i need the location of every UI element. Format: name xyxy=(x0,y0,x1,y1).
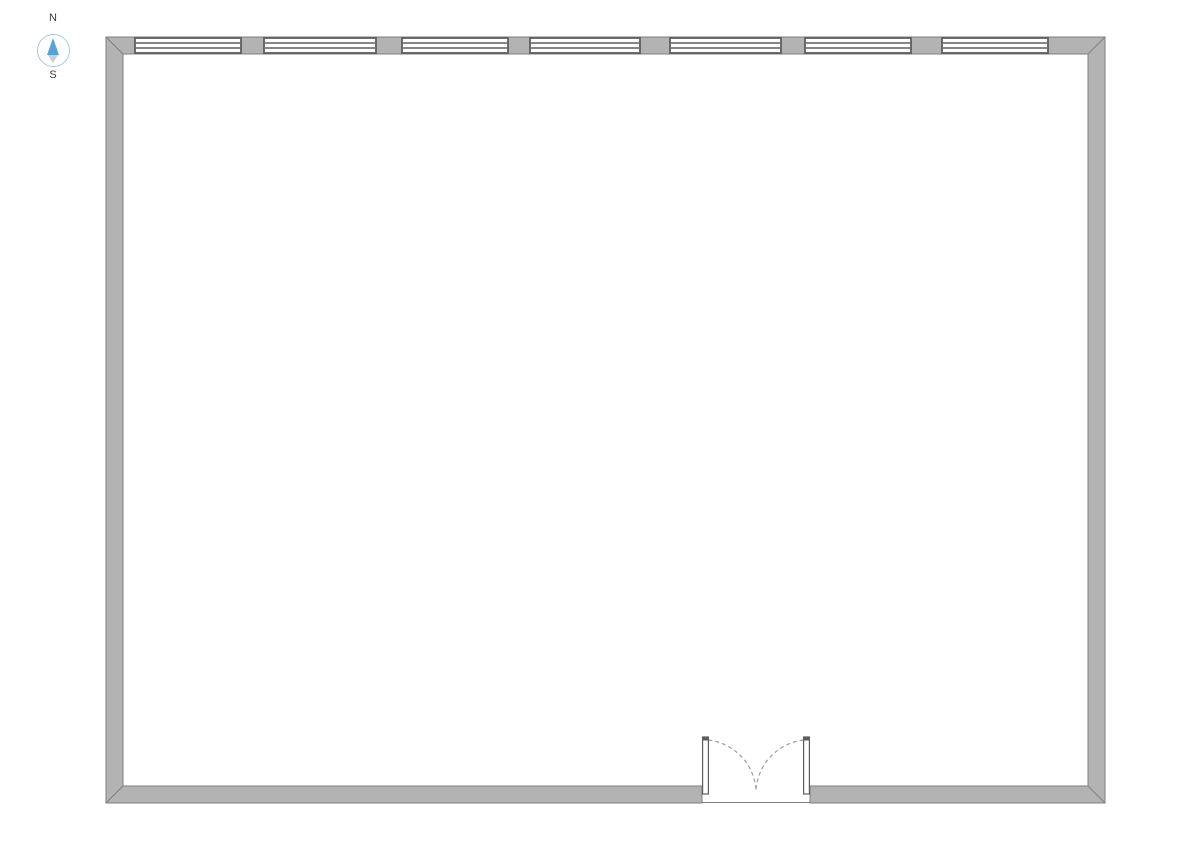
window-4 xyxy=(530,38,640,53)
window-2 xyxy=(264,38,376,53)
walls-group xyxy=(106,37,1105,803)
compass-north-label: N xyxy=(49,12,57,24)
compass-south-label: S xyxy=(49,69,56,81)
floorplan-svg xyxy=(0,0,1191,842)
compass-rose: N S xyxy=(36,12,70,81)
window-7 xyxy=(942,38,1048,53)
window-5 xyxy=(670,38,781,53)
window-6 xyxy=(805,38,911,53)
window-3 xyxy=(402,38,508,53)
compass-north-needle-icon xyxy=(47,38,59,55)
door-leaf-left-cap xyxy=(703,737,709,741)
window-1 xyxy=(135,38,241,53)
door-leaf-right-cap xyxy=(804,737,810,741)
door-group xyxy=(703,737,810,794)
door-leaf-left xyxy=(703,737,709,794)
door-swing-arc-left xyxy=(708,740,756,790)
compass-ring xyxy=(37,34,70,67)
door-leaf-right xyxy=(804,737,810,794)
windows-group xyxy=(135,38,1048,53)
floorplan-page: N S xyxy=(0,0,1191,842)
door-swing-arc-right xyxy=(756,740,804,790)
compass-south-needle-icon xyxy=(48,55,58,63)
wall-ring xyxy=(106,37,1105,803)
